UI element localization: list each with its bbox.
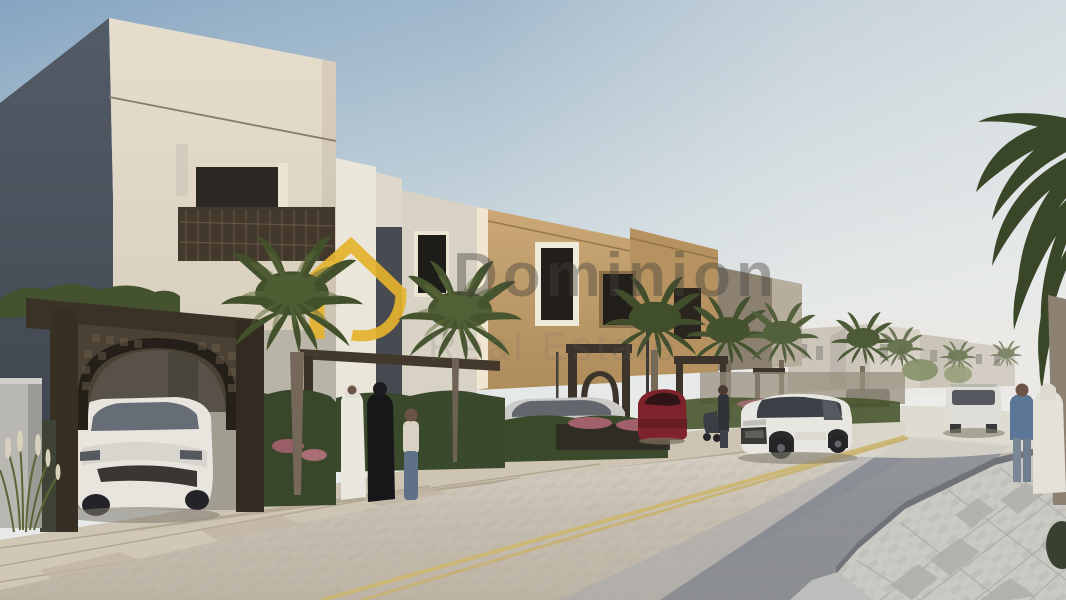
svg-text:Real Estate: Real Estate bbox=[428, 325, 679, 369]
svg-text:Dominion: Dominion bbox=[453, 241, 779, 310]
